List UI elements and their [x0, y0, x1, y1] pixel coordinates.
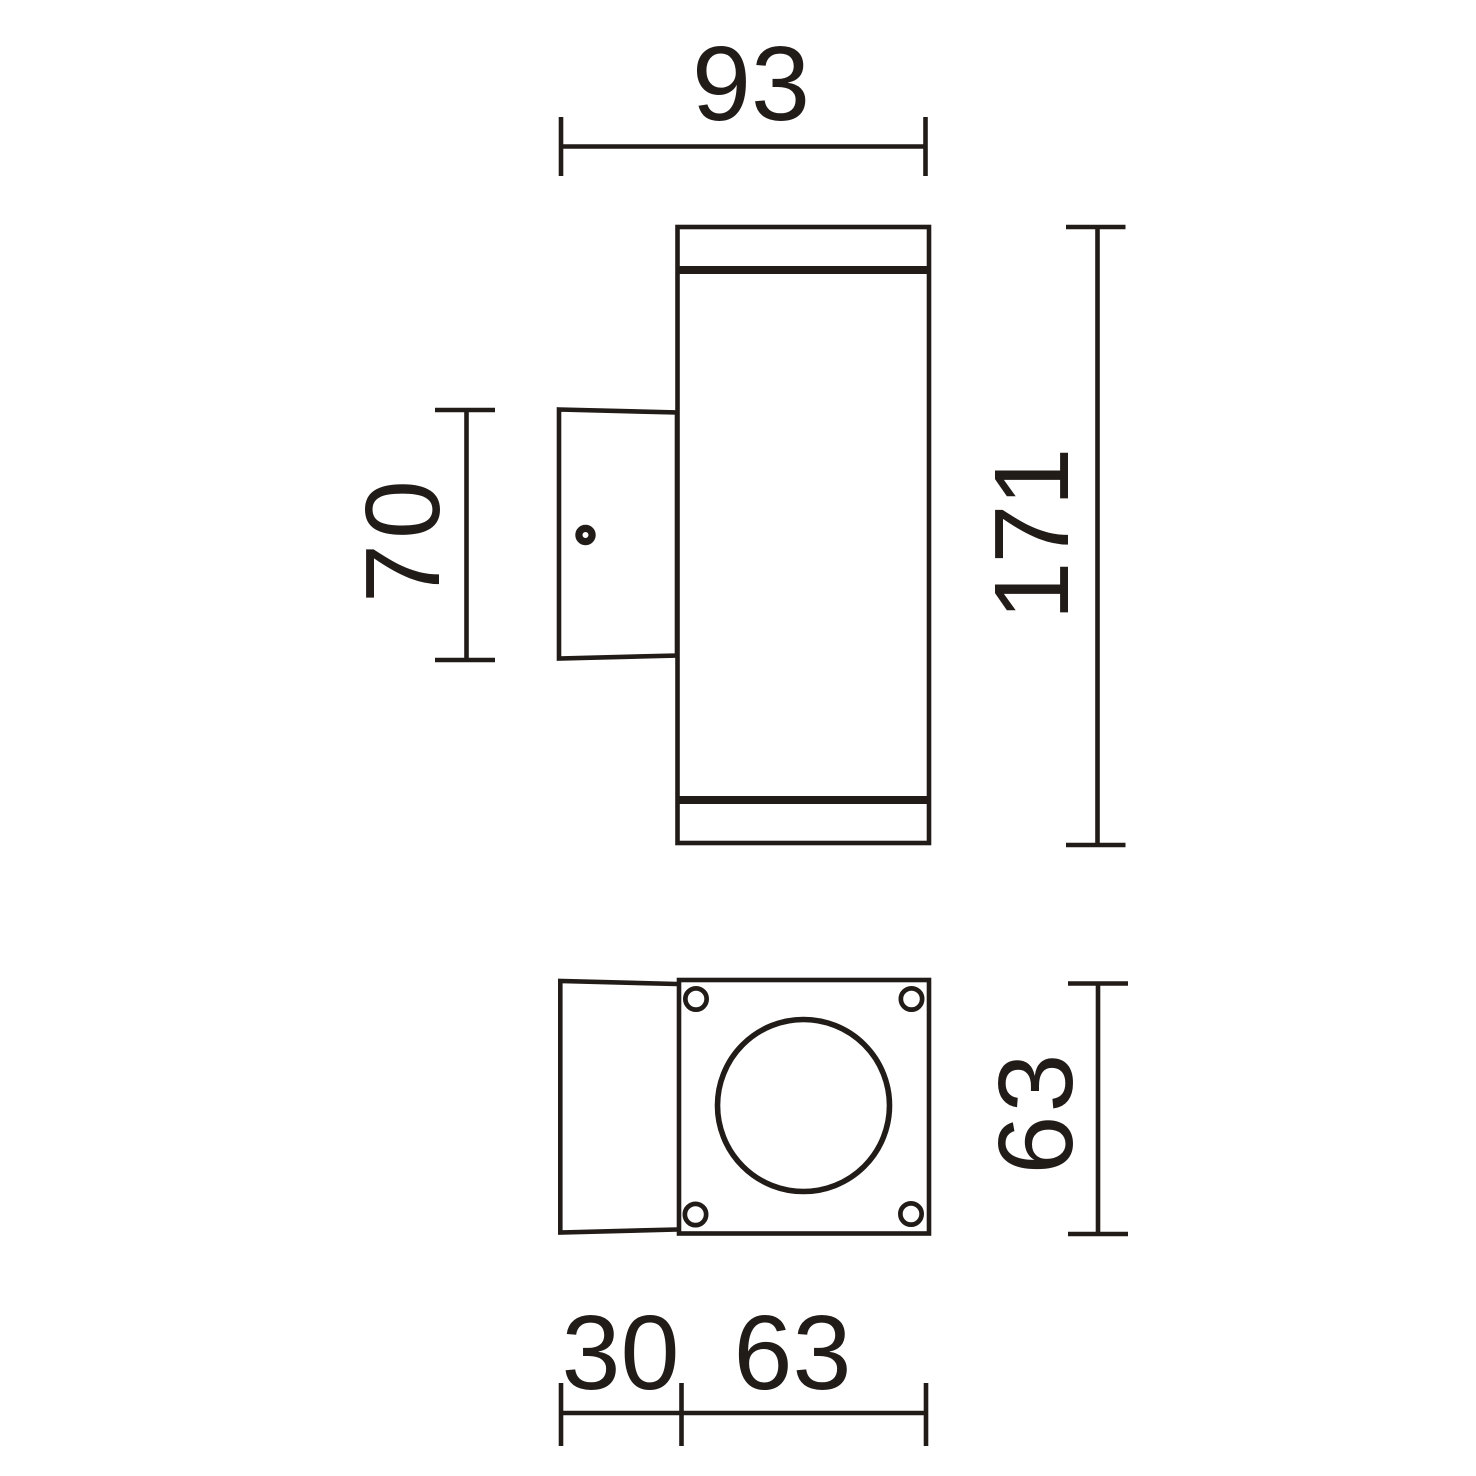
svg-text:171: 171	[973, 450, 1091, 621]
svg-text:30: 30	[562, 1294, 680, 1412]
svg-text:93: 93	[692, 25, 810, 143]
svg-text:63: 63	[734, 1294, 852, 1412]
svg-text:63: 63	[977, 1051, 1095, 1175]
svg-text:70: 70	[344, 475, 462, 603]
